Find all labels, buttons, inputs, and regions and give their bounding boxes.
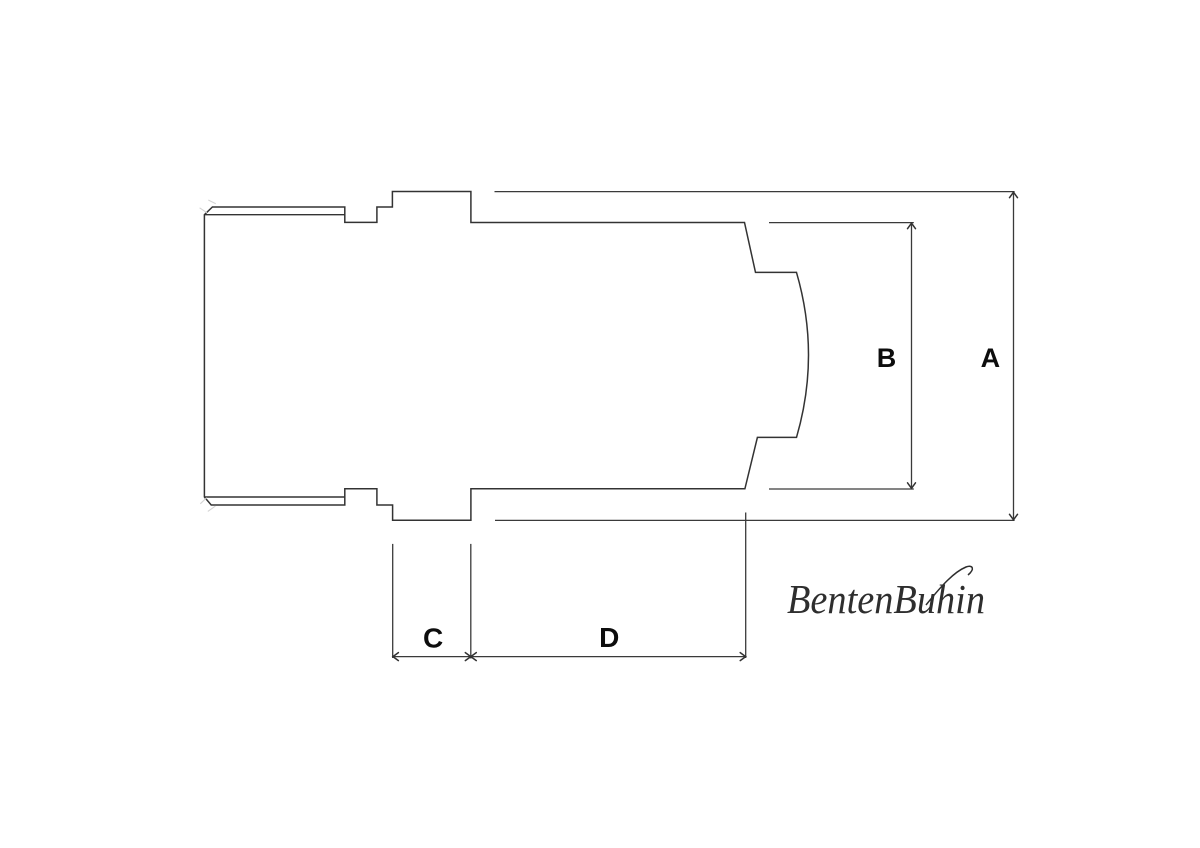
svg-text:B: B <box>877 343 897 373</box>
svg-text:A: A <box>981 343 1001 373</box>
svg-text:D: D <box>599 622 619 653</box>
svg-text:BentenBuhin: BentenBuhin <box>787 576 985 622</box>
svg-text:C: C <box>423 623 443 654</box>
